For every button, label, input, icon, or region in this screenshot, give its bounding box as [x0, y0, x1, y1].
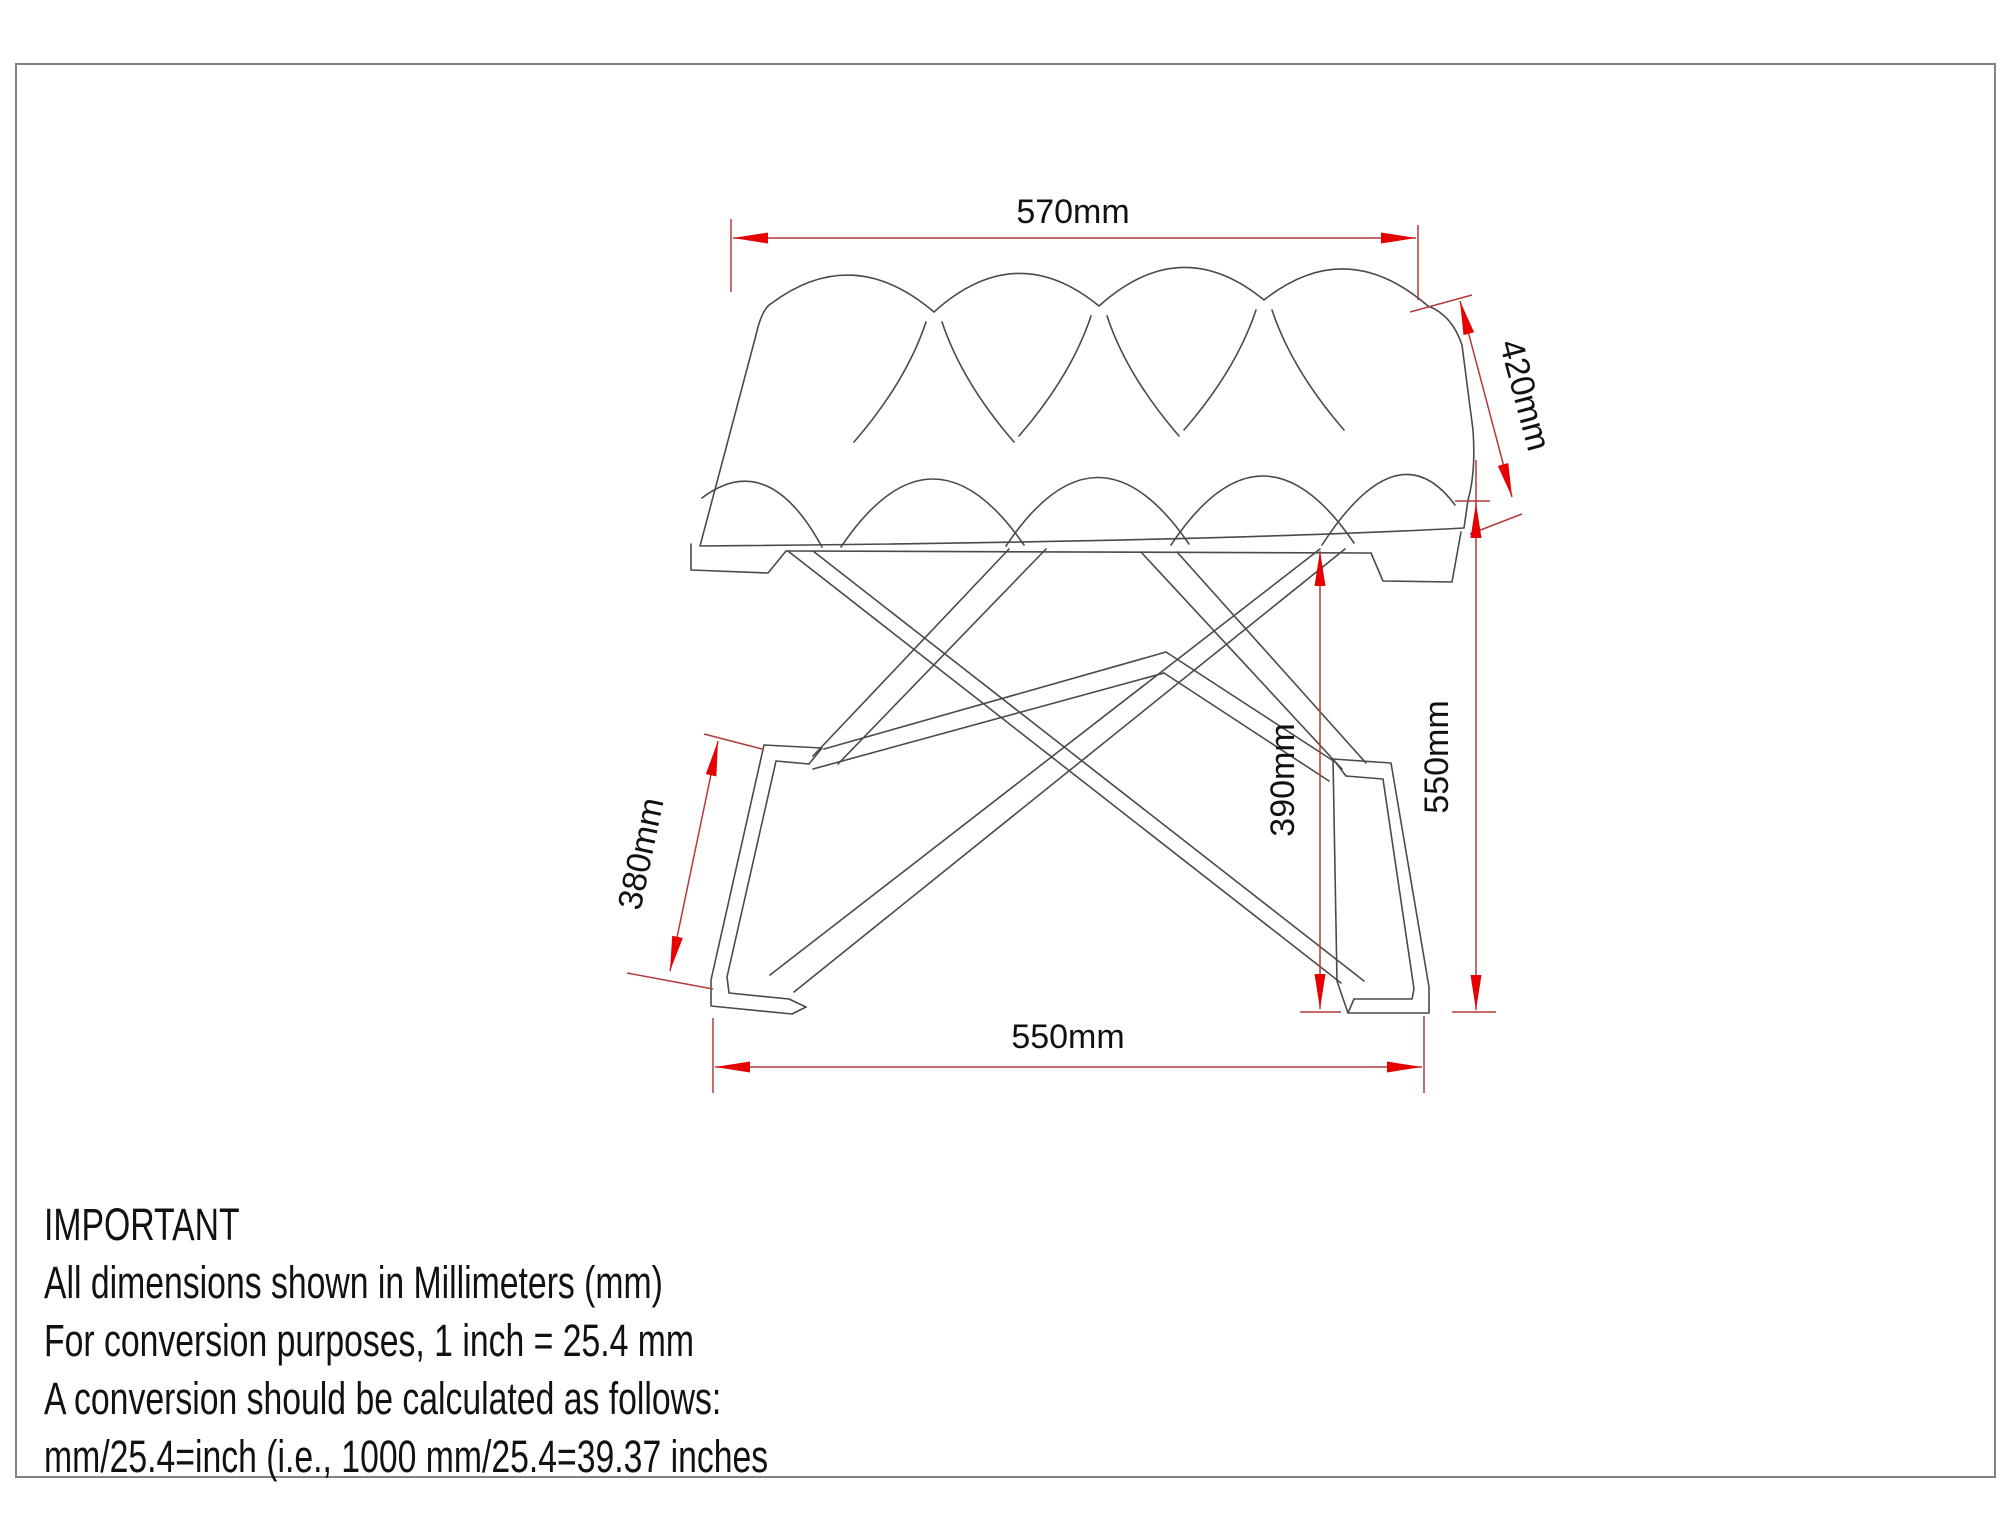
notes-line: All dimensions shown in Millimeters (mm)	[44, 1254, 768, 1312]
arrow-icon	[715, 1062, 750, 1073]
tuft-arch	[1322, 474, 1455, 545]
notes-line: mm/25.4=inch (i.e., 1000 mm/25.4=39.37 i…	[44, 1428, 768, 1486]
tuft-arch	[841, 479, 1024, 547]
tuft-arch	[702, 481, 822, 547]
important-notes: IMPORTANT All dimensions shown in Millim…	[44, 1196, 768, 1486]
arrow-icon	[1315, 974, 1326, 1009]
dim-label-seat-width: 570mm	[1016, 193, 1129, 231]
left-foot-hook	[789, 999, 806, 1007]
tuft-arch	[1006, 477, 1189, 546]
dimension-line-380	[670, 741, 718, 971]
arrow-icon	[670, 936, 683, 971]
arrow-icon	[1471, 503, 1482, 538]
arrow-icon	[1381, 233, 1416, 244]
notes-line: For conversion purposes, 1 inch = 25.4 m…	[44, 1312, 768, 1370]
cushion-outline	[700, 267, 1474, 546]
right-foot-hook	[1333, 759, 1346, 776]
dim-label-seat-depth: 420mm	[1492, 335, 1558, 454]
leg-strut	[838, 549, 1046, 764]
arrow-icon	[1387, 1062, 1422, 1073]
notes-line: A conversion should be calculated as fol…	[44, 1370, 768, 1428]
tuft-crease	[1107, 316, 1179, 436]
stool-outline-group	[691, 267, 1474, 1014]
seat-platform-edge	[786, 551, 1371, 553]
seat-platform	[1371, 532, 1461, 582]
right-foot-inner	[1346, 776, 1414, 999]
arrow-icon	[1315, 551, 1326, 586]
leg-strut	[770, 549, 1320, 975]
dim-label-overall-height: 550mm	[1418, 700, 1456, 813]
arrow-icon	[706, 741, 718, 776]
left-foot-hook	[809, 748, 822, 764]
floor-runner	[1164, 673, 1329, 781]
dim-label-clearance-height: 390mm	[1264, 723, 1302, 836]
leg-strut	[788, 551, 1341, 983]
arrow-icon	[1471, 975, 1482, 1010]
floor-runner	[1166, 652, 1335, 762]
dimension-lines-group	[627, 219, 1522, 1093]
tuft-crease	[1184, 310, 1256, 430]
arrow-icon	[1498, 463, 1512, 497]
leg-strut	[1141, 552, 1342, 769]
dim-label-base-width: 550mm	[1011, 1018, 1124, 1056]
dim-label-foot-height: 380mm	[611, 794, 672, 913]
tuft-crease	[1272, 310, 1344, 430]
dimension-labels-group: 570mm 420mm 550mm 390mm 380mm 550mm	[611, 193, 1558, 1056]
tuft-crease	[1019, 316, 1091, 436]
extension-line	[627, 973, 713, 989]
tuft-crease	[942, 322, 1014, 442]
extension-line	[704, 734, 762, 749]
dimension-arrows-group	[670, 233, 1512, 1073]
seat-platform	[691, 544, 786, 573]
leg-strut	[794, 549, 1345, 992]
right-foot	[1333, 759, 1429, 1013]
arrow-icon	[733, 233, 768, 244]
right-foot-hook	[1348, 999, 1354, 1013]
arrow-icon	[1460, 301, 1474, 335]
tuft-crease	[854, 322, 926, 442]
left-foot-inner	[727, 761, 809, 999]
notes-title: IMPORTANT	[44, 1196, 768, 1254]
